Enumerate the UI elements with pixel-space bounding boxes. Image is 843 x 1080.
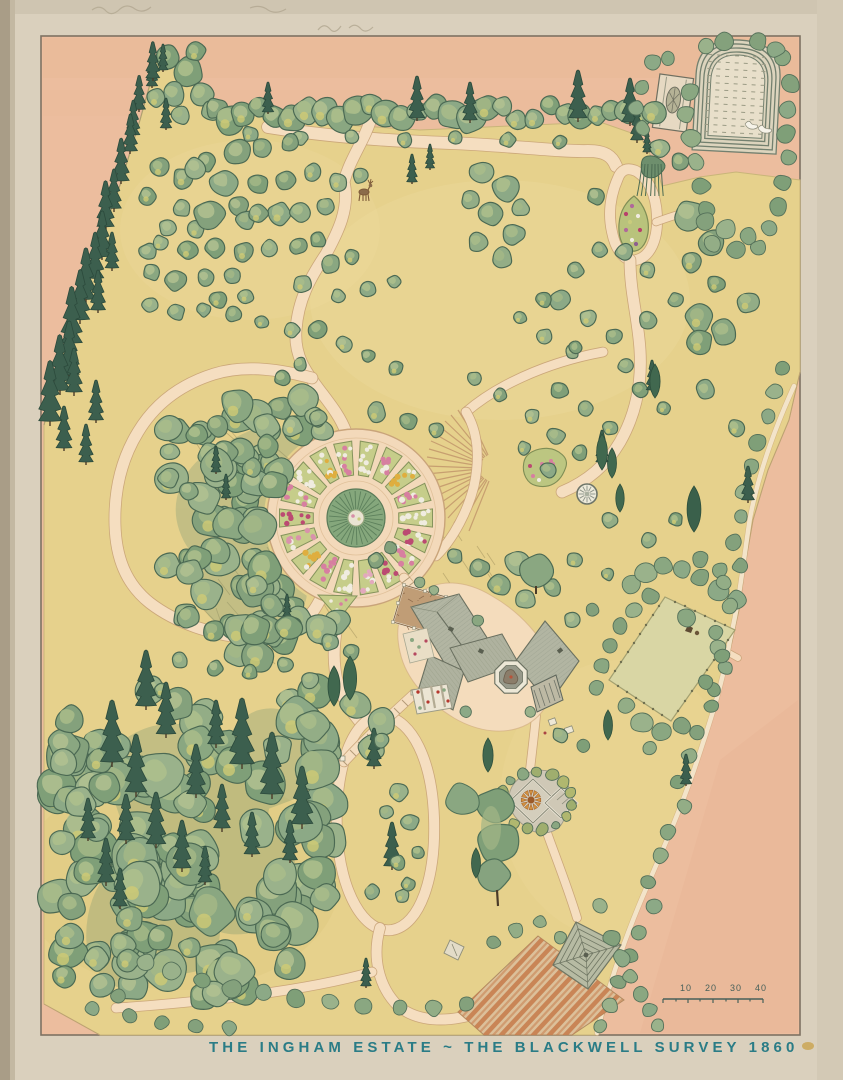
- svg-text:20: 20: [705, 983, 717, 993]
- svg-text:30: 30: [730, 983, 742, 993]
- svg-text:40: 40: [755, 983, 767, 993]
- svg-text:THE INGHAM ESTATE ~ THE BLACKW: THE INGHAM ESTATE ~ THE BLACKWELL SURVEY…: [209, 1039, 798, 1056]
- svg-text:10: 10: [680, 983, 692, 993]
